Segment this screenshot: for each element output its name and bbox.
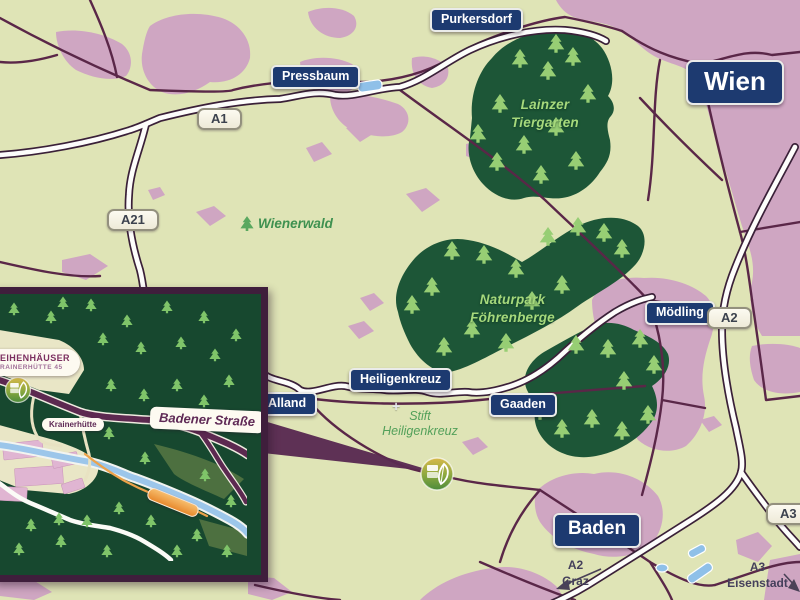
conifer-tree-icon — [175, 337, 186, 350]
forest-label-naturpark-foehrenberge: Naturpark Föhrenberge — [455, 291, 570, 326]
conifer-tree-icon — [198, 395, 209, 408]
conifer-tree-icon — [230, 329, 241, 342]
place-label-krainerhuette: Krainerhütte — [42, 418, 104, 431]
label-line: Tiergarten — [495, 114, 595, 132]
conifer-tree-icon — [121, 315, 132, 328]
conifer-tree-icon — [113, 502, 124, 515]
city-label-heiligenkreuz: Heiligenkreuz — [349, 368, 452, 392]
conifer-tree-icon — [8, 303, 19, 316]
city-label-moedling: Mödling — [645, 301, 715, 325]
label-line: EIHENHÄUSER — [0, 353, 70, 364]
motorway-shield-a3: A3 — [766, 503, 800, 525]
conifer-tree-icon — [161, 301, 172, 314]
motorway-shield-a21: A21 — [107, 209, 159, 231]
address-callout: EIHENHÄUSER RAINERHÜTTE 45 — [0, 349, 80, 376]
inset-map-krainerhuette: EIHENHÄUSER RAINERHÜTTE 45 Krainerhütte … — [0, 287, 268, 582]
city-label-wien: Wien — [686, 60, 784, 105]
direction-label-a3-eisenstadt: A3 Eisenstadt — [715, 560, 800, 591]
conifer-tree-icon — [198, 311, 209, 324]
conifer-tree-icon — [45, 311, 56, 324]
label-line: A2 — [548, 558, 603, 574]
label-line: Heiligenkreuz — [370, 424, 470, 439]
motorway-shield-a1: A1 — [197, 108, 242, 130]
city-label-purkersdorf: Purkersdorf — [430, 8, 523, 32]
conifer-tree-icon — [171, 379, 182, 392]
conifer-tree-icon — [57, 297, 68, 310]
conifer-tree-icon — [105, 379, 116, 392]
conifer-tree-icon — [25, 519, 36, 532]
eco-resort-marker-icon[interactable] — [421, 458, 453, 490]
label-line: Föhrenberge — [455, 309, 570, 327]
city-label-pressbaum: Pressbaum — [271, 65, 360, 89]
conifer-tree-icon — [209, 349, 220, 362]
map-canvas: Purkersdorf Pressbaum Wien Mödling Heili… — [0, 0, 800, 600]
label-line: A3 — [715, 560, 800, 576]
conifer-tree-icon — [135, 342, 146, 355]
city-label-baden: Baden — [553, 513, 641, 548]
conifer-tree-icon — [103, 427, 114, 440]
label-line: Graz — [548, 574, 603, 590]
conifer-tree-icon — [85, 299, 96, 312]
conifer-tree-icon — [139, 452, 150, 465]
label-line: RAINERHÜTTE 45 — [0, 364, 70, 372]
conifer-tree-icon — [138, 389, 149, 402]
conifer-tree-icon — [145, 515, 156, 528]
poi-label-stift-heiligenkreuz: Stift Heiligenkreuz — [370, 409, 470, 439]
label-line: Naturpark — [455, 291, 570, 309]
label-line: Stift — [370, 409, 470, 424]
conifer-tree-icon — [97, 333, 108, 346]
conifer-tree-icon — [191, 529, 202, 542]
conifer-tree-icon — [223, 375, 234, 388]
label-line: Wienerwald — [258, 216, 333, 231]
forest-label-lainzer-tiergarten: Lainzer Tiergarten — [495, 96, 595, 131]
conifer-tree-icon — [55, 535, 66, 548]
conifer-tree-icon — [225, 495, 236, 508]
inset-map-content: EIHENHÄUSER RAINERHÜTTE 45 Krainerhütte … — [0, 294, 247, 561]
region-label-wienerwald: Wienerwald — [240, 215, 333, 232]
conifer-tree-icon — [101, 545, 112, 558]
label-line: Eisenstadt — [715, 576, 800, 592]
eco-resort-marker-icon[interactable] — [6, 378, 31, 403]
conifer-tree-icon — [171, 545, 182, 558]
conifer-tree-icon — [240, 215, 254, 232]
direction-label-a2-graz: A2 Graz — [548, 558, 603, 589]
motorway-shield-a2: A2 — [707, 307, 752, 329]
city-label-gaaden: Gaaden — [489, 393, 557, 417]
label-line: Lainzer — [495, 96, 595, 114]
conifer-tree-icon — [13, 543, 24, 556]
